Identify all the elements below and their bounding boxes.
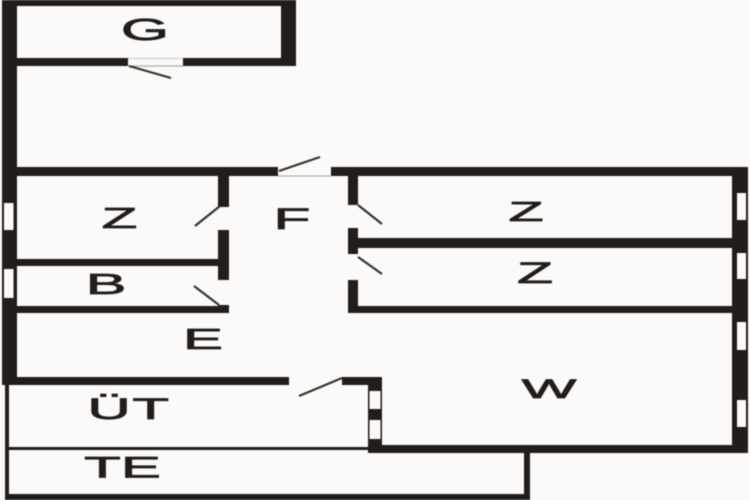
svg-text:G: G — [121, 13, 169, 47]
svg-text:F: F — [274, 203, 311, 236]
svg-text:Z: Z — [517, 256, 553, 289]
svg-text:B: B — [86, 268, 127, 300]
svg-text:ÜT: ÜT — [87, 392, 170, 426]
svg-text:Z: Z — [508, 196, 543, 228]
svg-text:W: W — [522, 374, 577, 404]
svg-text:E: E — [183, 323, 223, 355]
svg-text:TE: TE — [84, 451, 161, 485]
svg-text:Z: Z — [102, 202, 138, 234]
